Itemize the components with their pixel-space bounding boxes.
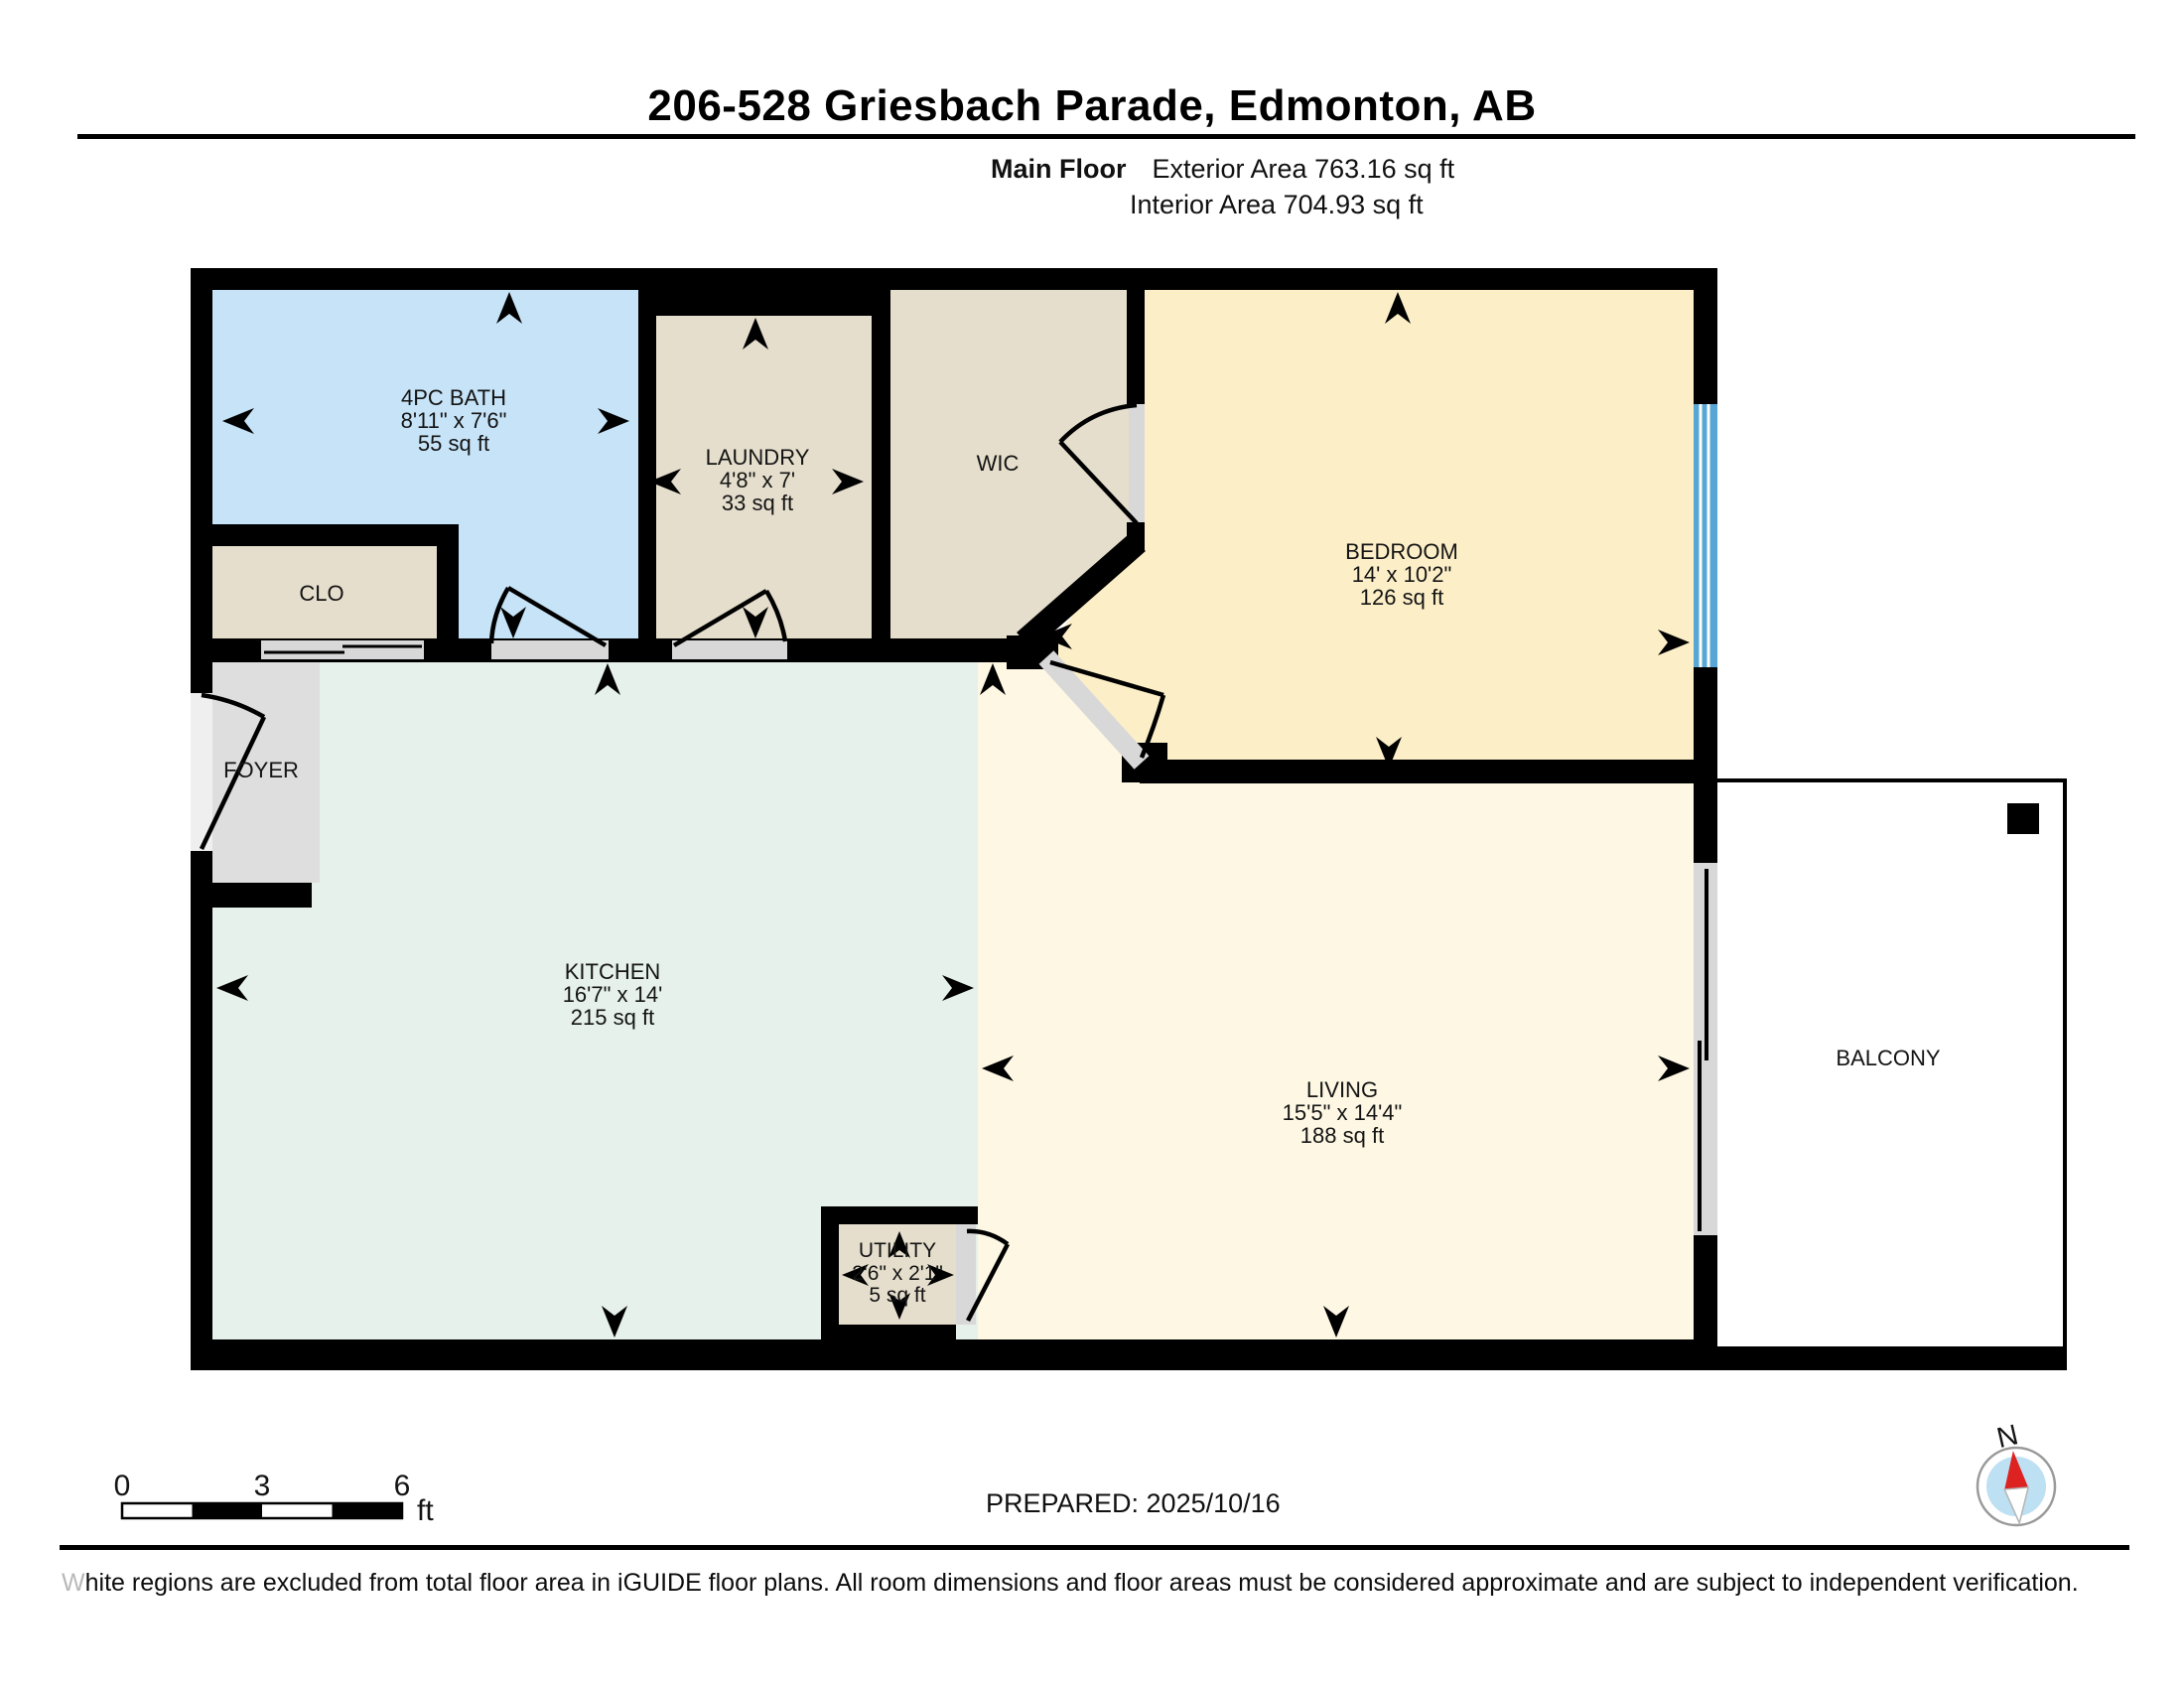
- kitchen-area: 215 sq ft: [571, 1005, 654, 1030]
- bedroom-area: 126 sq ft: [1360, 585, 1443, 610]
- living-area: 188 sq ft: [1300, 1123, 1384, 1148]
- bedroom-label: BEDROOM: [1345, 539, 1458, 564]
- laundry-dims: 4'8" x 7': [720, 468, 795, 492]
- wall-right-mid: [1694, 667, 1717, 865]
- bath-door-opening: [491, 640, 609, 659]
- laundry-label: LAUNDRY: [706, 445, 810, 470]
- wall-segment: [191, 524, 459, 546]
- bath-label: 4PC BATH: [401, 385, 506, 410]
- compass-north-label: N: [1994, 1419, 2022, 1455]
- closet-slider-opening: [261, 640, 424, 659]
- wall-segment: [821, 1206, 839, 1341]
- footer-divider: [60, 1545, 2129, 1550]
- wic-door-opening: [1129, 404, 1145, 522]
- wall-bath-laundry: [638, 290, 656, 642]
- bath-dims: 8'11" x 7'6": [401, 408, 507, 433]
- scale-bar-segment: [333, 1503, 403, 1518]
- wall-segment: [638, 268, 890, 316]
- scale-mid: 3: [254, 1470, 271, 1502]
- wall-laundry-wic: [872, 290, 890, 642]
- utility-dims: 2'6" x 2'1": [852, 1262, 943, 1285]
- wall-left-lower: [191, 851, 212, 1370]
- wic-label: WIC: [977, 451, 1020, 476]
- kitchen-label: KITCHEN: [565, 959, 661, 984]
- entry-opening: [191, 693, 212, 851]
- compass: N: [1978, 1419, 2055, 1525]
- wall-left-upper: [191, 268, 212, 693]
- wall-wic-bedroom: [1127, 290, 1145, 407]
- scale-end: 6: [394, 1470, 411, 1502]
- wall-segment: [821, 1206, 978, 1224]
- wall-segment: [839, 1325, 956, 1341]
- window: [1694, 404, 1717, 667]
- wall-bedroom-bottom: [1140, 760, 1694, 783]
- disclaimer-text: White regions are excluded from total fl…: [62, 1569, 2079, 1598]
- wall-right-upper: [1694, 268, 1717, 404]
- balcony-column: [2007, 803, 2039, 834]
- wall-bottom: [191, 1339, 1739, 1370]
- floor-plan-page: 206-528 Griesbach Parade, Edmonton, AB M…: [0, 0, 2184, 1688]
- living-label: LIVING: [1306, 1077, 1378, 1102]
- wall-foyer-stub: [191, 883, 312, 908]
- scale-start: 0: [114, 1470, 131, 1502]
- balcony-label: BALCONY: [1836, 1046, 1940, 1070]
- balcony-border-top: [1717, 778, 2067, 782]
- bedroom-dims: 14' x 10'2": [1352, 562, 1452, 587]
- utility-label: UTILITY: [859, 1239, 936, 1262]
- foyer-label: FOYER: [223, 758, 299, 782]
- utility-area: 5 sq ft: [869, 1284, 925, 1307]
- floor-plan-drawing: 4PC BATH 8'11" x 7'6" 55 sq ft LAUNDRY 4…: [0, 0, 2184, 1688]
- kitchen-dims: 16'7" x 14': [563, 982, 663, 1007]
- bath-area: 55 sq ft: [418, 431, 489, 456]
- scale-bar-segment: [193, 1503, 263, 1518]
- wall-under-balcony: [1739, 1342, 2067, 1370]
- living-dims: 15'5" x 14'4": [1283, 1100, 1403, 1125]
- prepared-date: PREPARED: 2025/10/16: [986, 1488, 1281, 1519]
- scale-unit: ft: [417, 1494, 434, 1527]
- scale-bar: 0 3 6 ft: [114, 1470, 435, 1527]
- clo-label: CLO: [299, 581, 343, 606]
- laundry-door-opening: [672, 640, 787, 659]
- wall-top: [191, 268, 1717, 290]
- laundry-area: 33 sq ft: [722, 491, 793, 515]
- balcony-border-right: [2063, 778, 2067, 1346]
